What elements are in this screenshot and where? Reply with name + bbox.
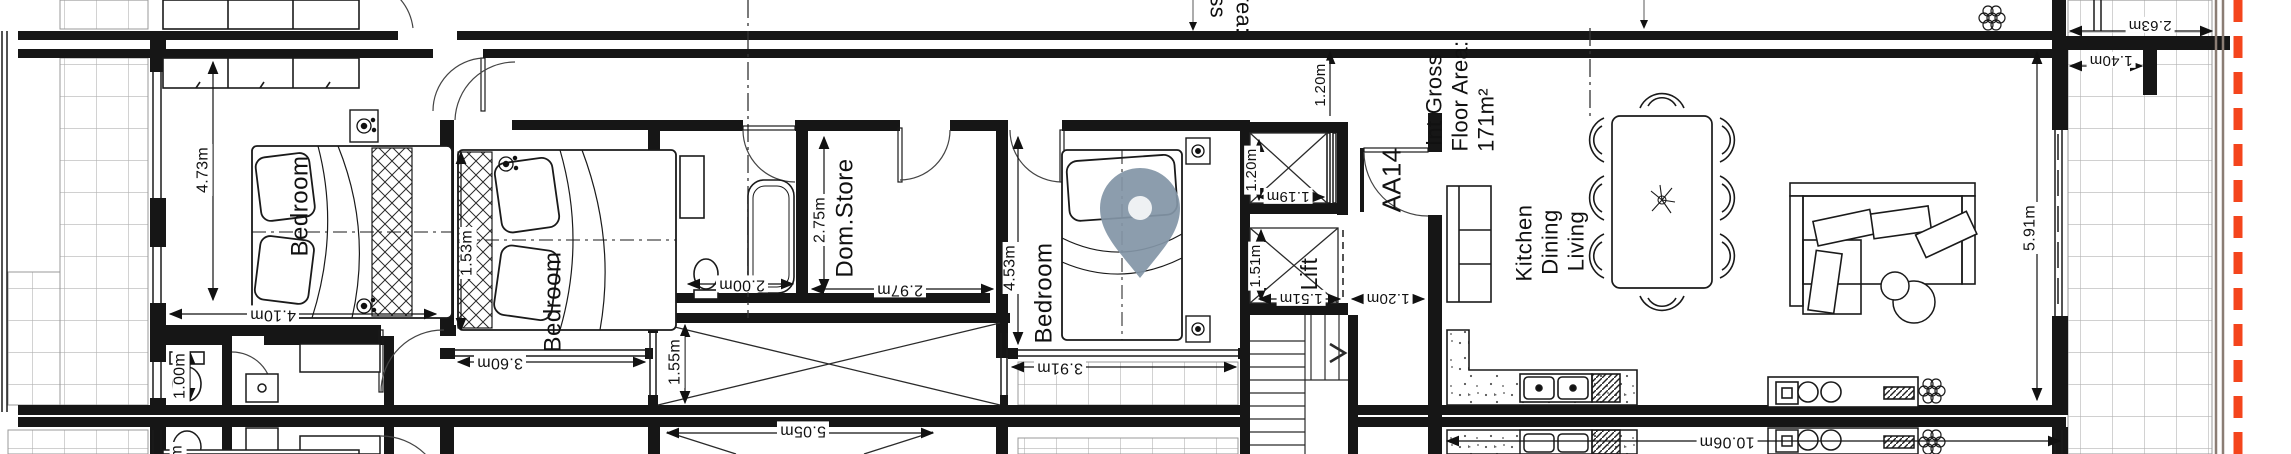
dimension-2-00: 2.00m bbox=[716, 276, 768, 293]
area-label-line-1: Int Gross bbox=[1422, 54, 1445, 146]
room-label-bedroom-2: Bedroom bbox=[540, 252, 565, 353]
shower-room-fixtures bbox=[246, 344, 380, 402]
room-label-bedroom-3: Bedroom bbox=[1031, 243, 1056, 344]
upper-floor-leader-arrows bbox=[1189, 0, 1648, 31]
dimension-4-53: 4.53m bbox=[1003, 242, 1020, 294]
unit-label-aa14: AA14 bbox=[1378, 148, 1405, 213]
dimension-1-53: 1.53m bbox=[460, 227, 477, 279]
dimension-2-63: 2.63m bbox=[2125, 17, 2174, 33]
dimension-1-40: 1.40m bbox=[2086, 52, 2135, 68]
plan-linework bbox=[0, 0, 2291, 454]
floor-plan: 4.73m Bedroom 4.10m 1.00m 1.53m Bedroom … bbox=[0, 0, 2291, 454]
dimension-shaft-width: 1.20m bbox=[1244, 145, 1260, 194]
dimension-3-91: 3.91m bbox=[1034, 359, 1086, 376]
room-label-bedroom-1: Bedroom bbox=[287, 156, 312, 257]
dimension-duct: 1.20m bbox=[1313, 60, 1329, 109]
dimension-lift-depth: 1.51m bbox=[1276, 290, 1325, 306]
dimension-2-75: 2.75m bbox=[813, 194, 830, 246]
dimension-5-05: 5.05m bbox=[777, 422, 829, 439]
room-label-lift: Lift bbox=[1297, 258, 1321, 291]
dimension-5-91: 5.91m bbox=[2023, 202, 2040, 254]
dining-table bbox=[1612, 116, 1712, 288]
cutoff-area-label-top-2: Floor Area: bbox=[1232, 0, 1255, 33]
stairs bbox=[1250, 315, 1348, 454]
balcony-rail bbox=[2216, 0, 2223, 454]
dimension-shaft-depth: 1.19m bbox=[1263, 188, 1312, 204]
area-label-line-2: Floor Area: bbox=[1448, 41, 1471, 152]
kitchen-counter bbox=[1447, 330, 1918, 407]
wardrobes bbox=[163, 0, 359, 88]
dimension-3-60: 3.60m bbox=[474, 354, 526, 371]
kitchen-island bbox=[1447, 186, 1491, 302]
dimension-corridor: 1.20m bbox=[1363, 290, 1412, 306]
dimension-10-06: 10.06m bbox=[1696, 433, 1757, 450]
room-label-living: Living bbox=[1564, 211, 1587, 271]
dimension-2-97: 2.97m bbox=[874, 281, 926, 298]
cutoff-area-label-top-1: Int Gross bbox=[1206, 0, 1229, 18]
area-label-line-3: 171m² bbox=[1474, 88, 1497, 152]
dimension-1-00: 1.00m bbox=[173, 350, 190, 402]
room-label-dining: Dining bbox=[1538, 209, 1561, 274]
dimension-lift-width: 1.51m bbox=[1248, 241, 1264, 290]
dimension-4-10: 4.10m bbox=[247, 306, 299, 323]
room-label-kitchen: Kitchen bbox=[1512, 205, 1535, 282]
lightwell-cross bbox=[658, 323, 1000, 454]
room-label-dom-store: Dom.Store bbox=[832, 158, 857, 277]
bed-bedroom-2 bbox=[458, 150, 676, 330]
dimension-1-55: 1.55m bbox=[668, 336, 685, 388]
dimension-4-73: 4.73m bbox=[196, 144, 213, 196]
coffee-tables bbox=[1881, 272, 1935, 323]
bed-bedroom-1 bbox=[252, 146, 452, 318]
cutoff-dimension-bottom: 1.00m bbox=[170, 442, 187, 454]
balcony-tiles-left bbox=[8, 0, 148, 454]
